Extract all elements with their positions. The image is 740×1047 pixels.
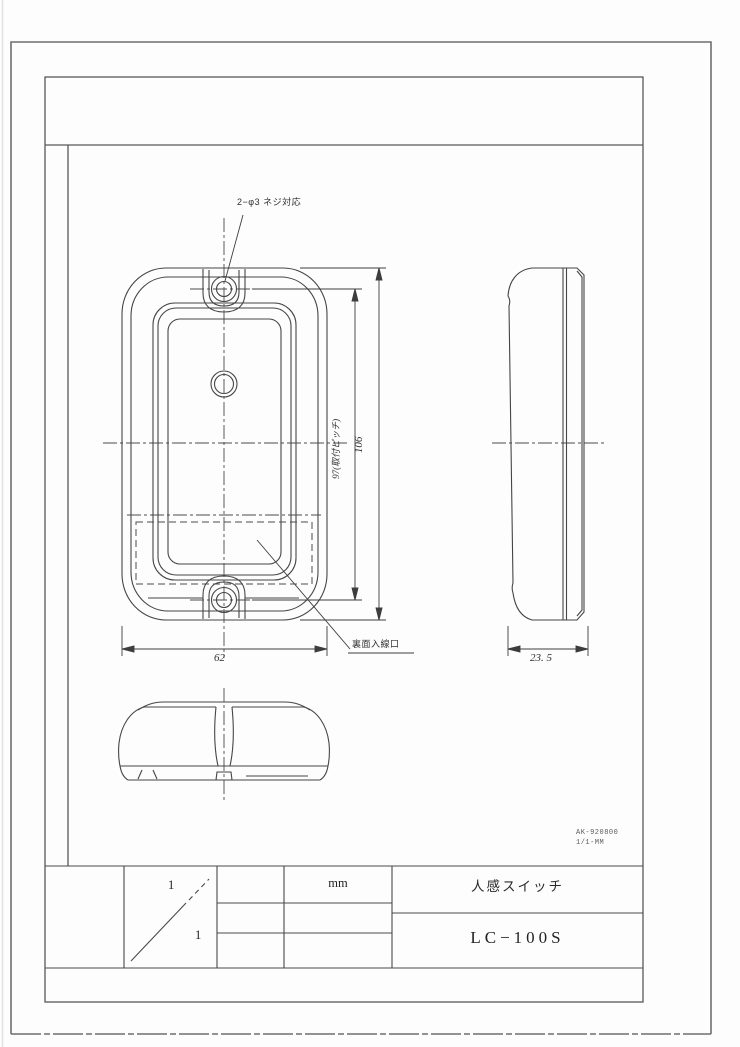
scale-units-note: 1/1-MM — [576, 840, 604, 848]
drawing-sheet: 2−φ3 ネジ対応 97(取付ピッチ) 106 62 23. 5 裏面入線口 A… — [0, 0, 740, 1047]
model-number: LC−100S — [392, 929, 643, 948]
side-view — [508, 268, 584, 620]
doc-number-note: AK-920800 — [576, 830, 618, 838]
scale-numerator: 1 — [168, 879, 174, 893]
centerlines — [103, 218, 604, 800]
front-view — [122, 268, 327, 620]
screw-note-label: 2−φ3 ネジ対応 — [237, 198, 301, 208]
width-dimension-label: 62 — [214, 652, 225, 664]
depth-dimension-label: 23. 5 — [530, 652, 552, 664]
height-dimension-label: 106 — [353, 437, 365, 454]
units-label: mm — [284, 877, 392, 891]
pitch-dimension-label: 97(取付ピッチ) — [332, 419, 342, 479]
leader-lines — [225, 215, 414, 653]
scale-denominator: 1 — [195, 929, 201, 943]
product-title: 人感スイッチ — [392, 880, 643, 895]
sheet-frame — [45, 77, 643, 1002]
rear-entry-label: 裏面入線口 — [352, 640, 400, 650]
